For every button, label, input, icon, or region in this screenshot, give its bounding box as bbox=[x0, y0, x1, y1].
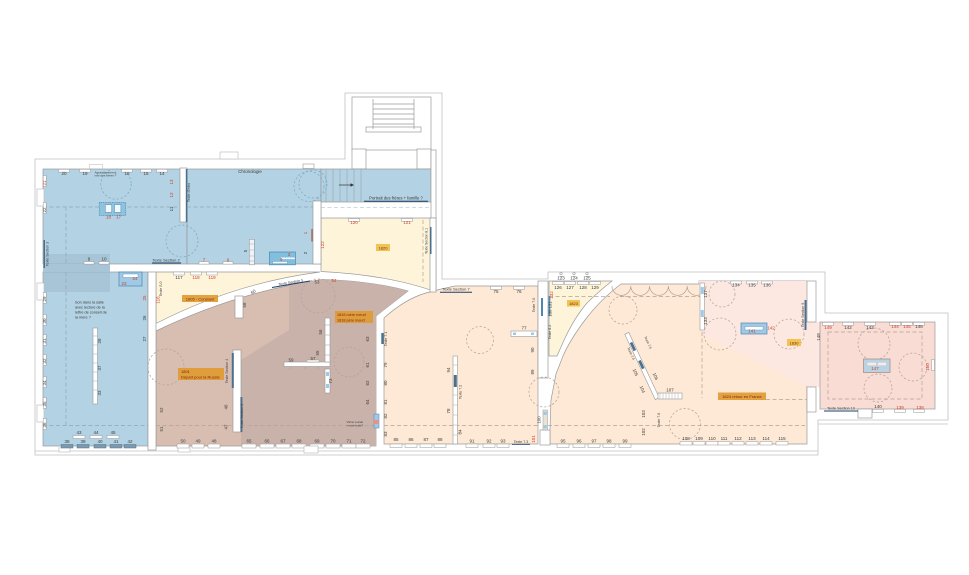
svg-text:33: 33 bbox=[97, 390, 102, 396]
svg-text:150: 150 bbox=[925, 363, 930, 371]
svg-text:26: 26 bbox=[142, 315, 147, 321]
svg-text:88: 88 bbox=[437, 437, 443, 442]
svg-text:139: 139 bbox=[896, 405, 904, 410]
svg-text:97: 97 bbox=[591, 439, 597, 444]
svg-text:111: 111 bbox=[721, 436, 728, 441]
svg-text:109: 109 bbox=[695, 436, 703, 441]
svg-text:40: 40 bbox=[97, 439, 103, 444]
svg-text:63: 63 bbox=[365, 336, 370, 342]
svg-text:125: 125 bbox=[583, 276, 591, 281]
svg-text:1824 retour en France: 1824 retour en France bbox=[722, 394, 762, 399]
svg-text:12: 12 bbox=[169, 192, 174, 198]
svg-text:Texte S.0: Texte S.0 bbox=[159, 282, 163, 297]
svg-text:86: 86 bbox=[408, 437, 414, 442]
svg-text:Son dans la salle: Son dans la salle bbox=[75, 301, 104, 305]
svg-text:82: 82 bbox=[383, 413, 388, 419]
svg-text:81: 81 bbox=[383, 399, 388, 405]
svg-text:46: 46 bbox=[224, 404, 229, 410]
svg-text:Texte d'intro: Texte d'intro bbox=[187, 183, 191, 202]
svg-text:1820: 1820 bbox=[379, 246, 389, 251]
svg-text:142: 142 bbox=[844, 325, 852, 330]
svg-text:112: 112 bbox=[734, 436, 742, 441]
svg-text:72: 72 bbox=[360, 439, 366, 444]
svg-text:117: 117 bbox=[175, 275, 183, 280]
svg-text:123: 123 bbox=[557, 276, 565, 281]
svg-text:140: 140 bbox=[874, 404, 882, 409]
svg-text:99: 99 bbox=[622, 439, 628, 444]
svg-text:68: 68 bbox=[296, 439, 302, 444]
svg-text:Texte 8.2: Texte 8.2 bbox=[548, 325, 552, 340]
svg-text:Texte Section 7: Texte Section 7 bbox=[442, 287, 470, 292]
svg-text:93: 93 bbox=[500, 439, 506, 444]
svg-text:75: 75 bbox=[493, 289, 499, 294]
svg-text:103: 103 bbox=[641, 410, 646, 418]
svg-text:la mère ?: la mère ? bbox=[75, 316, 91, 320]
svg-text:10: 10 bbox=[101, 257, 107, 262]
svg-text:65: 65 bbox=[246, 439, 252, 444]
svg-text:108: 108 bbox=[682, 436, 690, 441]
svg-text:98: 98 bbox=[606, 439, 612, 444]
svg-text:1818 père meurt: 1818 père meurt bbox=[337, 319, 366, 323]
svg-text:44: 44 bbox=[93, 430, 99, 435]
svg-text:11: 11 bbox=[169, 206, 174, 211]
svg-text:138: 138 bbox=[916, 405, 924, 410]
svg-text:84: 84 bbox=[458, 429, 463, 435]
svg-text:32: 32 bbox=[42, 358, 47, 364]
svg-text:66: 66 bbox=[264, 439, 270, 444]
svg-text:Texte Section 10: Texte Section 10 bbox=[827, 407, 855, 411]
svg-text:27: 27 bbox=[142, 336, 147, 342]
svg-text:144: 144 bbox=[891, 324, 899, 329]
svg-text:59: 59 bbox=[288, 358, 294, 363]
svg-text:71: 71 bbox=[346, 439, 352, 444]
svg-text:41: 41 bbox=[113, 439, 119, 444]
svg-text:102: 102 bbox=[641, 428, 646, 436]
svg-text:Texte 7.2: Texte 7.2 bbox=[459, 385, 463, 399]
svg-text:126: 126 bbox=[554, 285, 562, 290]
svg-text:110: 110 bbox=[708, 436, 716, 441]
svg-text:Chronologie: Chronologie bbox=[238, 169, 262, 174]
svg-text:120: 120 bbox=[350, 220, 358, 225]
svg-text:90: 90 bbox=[530, 347, 535, 353]
svg-text:51: 51 bbox=[159, 426, 164, 432]
svg-text:118: 118 bbox=[192, 275, 200, 280]
svg-text:Texte Section 2: Texte Section 2 bbox=[152, 258, 180, 263]
svg-text:132: 132 bbox=[549, 291, 554, 299]
svg-text:148: 148 bbox=[816, 333, 821, 341]
svg-text:50: 50 bbox=[180, 439, 186, 444]
svg-text:53: 53 bbox=[314, 280, 320, 285]
svg-text:15: 15 bbox=[143, 171, 149, 176]
svg-text:119: 119 bbox=[208, 275, 216, 280]
svg-text:17: 17 bbox=[116, 215, 122, 220]
svg-text:87: 87 bbox=[423, 437, 429, 442]
svg-text:22: 22 bbox=[42, 207, 47, 213]
svg-text:28: 28 bbox=[97, 338, 102, 344]
svg-text:55: 55 bbox=[315, 350, 320, 356]
svg-text:128: 128 bbox=[579, 285, 587, 290]
svg-text:29: 29 bbox=[42, 296, 47, 302]
svg-text:129: 129 bbox=[591, 285, 599, 290]
svg-text:121: 121 bbox=[403, 220, 411, 225]
svg-text:Texte 7.6: Texte 7.6 bbox=[657, 413, 661, 428]
svg-text:34: 34 bbox=[42, 380, 47, 386]
svg-text:1801: 1801 bbox=[181, 369, 191, 374]
svg-text:1830: 1830 bbox=[790, 341, 800, 346]
svg-text:43: 43 bbox=[76, 430, 82, 435]
svg-text:25: 25 bbox=[142, 295, 147, 301]
svg-text:145: 145 bbox=[903, 324, 911, 329]
svg-text:100: 100 bbox=[537, 416, 542, 424]
svg-text:83: 83 bbox=[383, 431, 388, 437]
svg-text:57: 57 bbox=[310, 356, 316, 361]
svg-text:Texte Section 4: Texte Section 4 bbox=[225, 359, 229, 384]
svg-text:lettre de conseil de: lettre de conseil de bbox=[75, 311, 107, 315]
svg-text:49: 49 bbox=[195, 439, 201, 444]
svg-text:147: 147 bbox=[871, 366, 879, 371]
svg-text:45: 45 bbox=[110, 430, 116, 435]
svg-text:Portrait des frères + famille: Portrait des frères + famille ? bbox=[369, 196, 423, 201]
svg-text:née des frères ?: née des frères ? bbox=[95, 174, 117, 178]
svg-text:133: 133 bbox=[703, 317, 708, 325]
svg-text:116: 116 bbox=[156, 296, 161, 304]
svg-text:Texte 7.0: Texte 7.0 bbox=[532, 298, 536, 313]
svg-text:38: 38 bbox=[64, 439, 70, 444]
svg-text:61: 61 bbox=[365, 362, 370, 368]
svg-text:54: 54 bbox=[331, 278, 337, 283]
svg-text:+ texte écrits?: + texte écrits? bbox=[346, 424, 363, 428]
svg-text:113: 113 bbox=[748, 436, 756, 441]
svg-text:37: 37 bbox=[97, 365, 102, 371]
svg-text:36: 36 bbox=[42, 422, 47, 428]
svg-text:42: 42 bbox=[127, 439, 133, 444]
svg-text:Texte Section 3: Texte Section 3 bbox=[46, 242, 50, 267]
svg-text:13: 13 bbox=[169, 179, 174, 185]
svg-text:130 131: 130 131 bbox=[548, 301, 553, 317]
svg-text:137: 137 bbox=[703, 290, 708, 298]
svg-text:96: 96 bbox=[576, 439, 582, 444]
svg-text:Départ pour la Russie: Départ pour la Russie bbox=[181, 375, 220, 380]
svg-text:78: 78 bbox=[446, 408, 451, 414]
svg-text:89: 89 bbox=[530, 369, 535, 375]
svg-text:14: 14 bbox=[159, 171, 165, 176]
svg-text:85: 85 bbox=[393, 437, 399, 442]
svg-text:73: 73 bbox=[328, 378, 333, 384]
svg-text:Texte Section 5: Texte Section 5 bbox=[240, 404, 244, 429]
svg-text:149: 149 bbox=[824, 325, 832, 330]
svg-text:avec lecture de la: avec lecture de la bbox=[75, 306, 106, 310]
svg-text:52: 52 bbox=[159, 407, 164, 413]
svg-text:80: 80 bbox=[383, 380, 388, 386]
svg-text:1823: 1823 bbox=[569, 301, 579, 306]
svg-text:115: 115 bbox=[778, 436, 786, 441]
svg-text:20: 20 bbox=[61, 171, 67, 176]
svg-text:48: 48 bbox=[211, 439, 217, 444]
svg-text:18: 18 bbox=[106, 215, 112, 220]
svg-text:136: 136 bbox=[763, 283, 771, 288]
svg-text:1805 - Constant: 1805 - Constant bbox=[186, 297, 215, 302]
svg-text:56: 56 bbox=[318, 329, 323, 335]
svg-text:69: 69 bbox=[314, 439, 320, 444]
svg-text:101: 101 bbox=[531, 435, 536, 443]
svg-text:107: 107 bbox=[666, 388, 674, 393]
svg-text:1816 mère meurt: 1816 mère meurt bbox=[337, 313, 367, 317]
svg-text:135: 135 bbox=[748, 283, 756, 288]
svg-text:31: 31 bbox=[42, 338, 47, 344]
svg-text:141: 141 bbox=[748, 329, 756, 334]
svg-text:94: 94 bbox=[446, 367, 451, 373]
svg-text:70: 70 bbox=[330, 439, 336, 444]
svg-text:16: 16 bbox=[124, 171, 130, 176]
svg-text:23: 23 bbox=[121, 281, 127, 286]
svg-text:Texte Section 8.1: Texte Section 8.1 bbox=[425, 228, 429, 254]
svg-text:39: 39 bbox=[80, 439, 86, 444]
svg-text:30: 30 bbox=[42, 318, 47, 324]
svg-text:62: 62 bbox=[365, 380, 370, 386]
svg-text:Texte 7.1: Texte 7.1 bbox=[384, 332, 388, 347]
svg-text:64: 64 bbox=[365, 399, 370, 405]
svg-text:95: 95 bbox=[560, 439, 566, 444]
svg-text:76: 76 bbox=[516, 289, 522, 294]
svg-text:91: 91 bbox=[469, 439, 475, 444]
svg-text:Texte 7.3: Texte 7.3 bbox=[514, 440, 529, 444]
svg-text:146: 146 bbox=[915, 324, 923, 329]
svg-text:21: 21 bbox=[42, 180, 47, 186]
svg-text:77: 77 bbox=[521, 326, 527, 331]
svg-text:134: 134 bbox=[732, 283, 740, 288]
svg-text:Texte Section 9: Texte Section 9 bbox=[801, 303, 805, 328]
svg-text:124: 124 bbox=[570, 276, 578, 281]
svg-text:114: 114 bbox=[762, 436, 770, 441]
svg-text:127: 127 bbox=[566, 285, 574, 290]
svg-text:142: 142 bbox=[767, 326, 775, 331]
svg-text:67: 67 bbox=[280, 439, 286, 444]
svg-text:47: 47 bbox=[224, 424, 229, 430]
svg-text:Vitrine murale: Vitrine murale bbox=[346, 420, 363, 424]
svg-text:143: 143 bbox=[866, 325, 874, 330]
svg-text:92: 92 bbox=[486, 439, 492, 444]
svg-text:35: 35 bbox=[42, 401, 47, 407]
svg-text:58: 58 bbox=[242, 302, 247, 308]
svg-text:79: 79 bbox=[383, 362, 388, 368]
svg-text:24: 24 bbox=[132, 276, 138, 281]
svg-text:19: 19 bbox=[82, 171, 88, 176]
svg-text:122: 122 bbox=[320, 241, 325, 249]
